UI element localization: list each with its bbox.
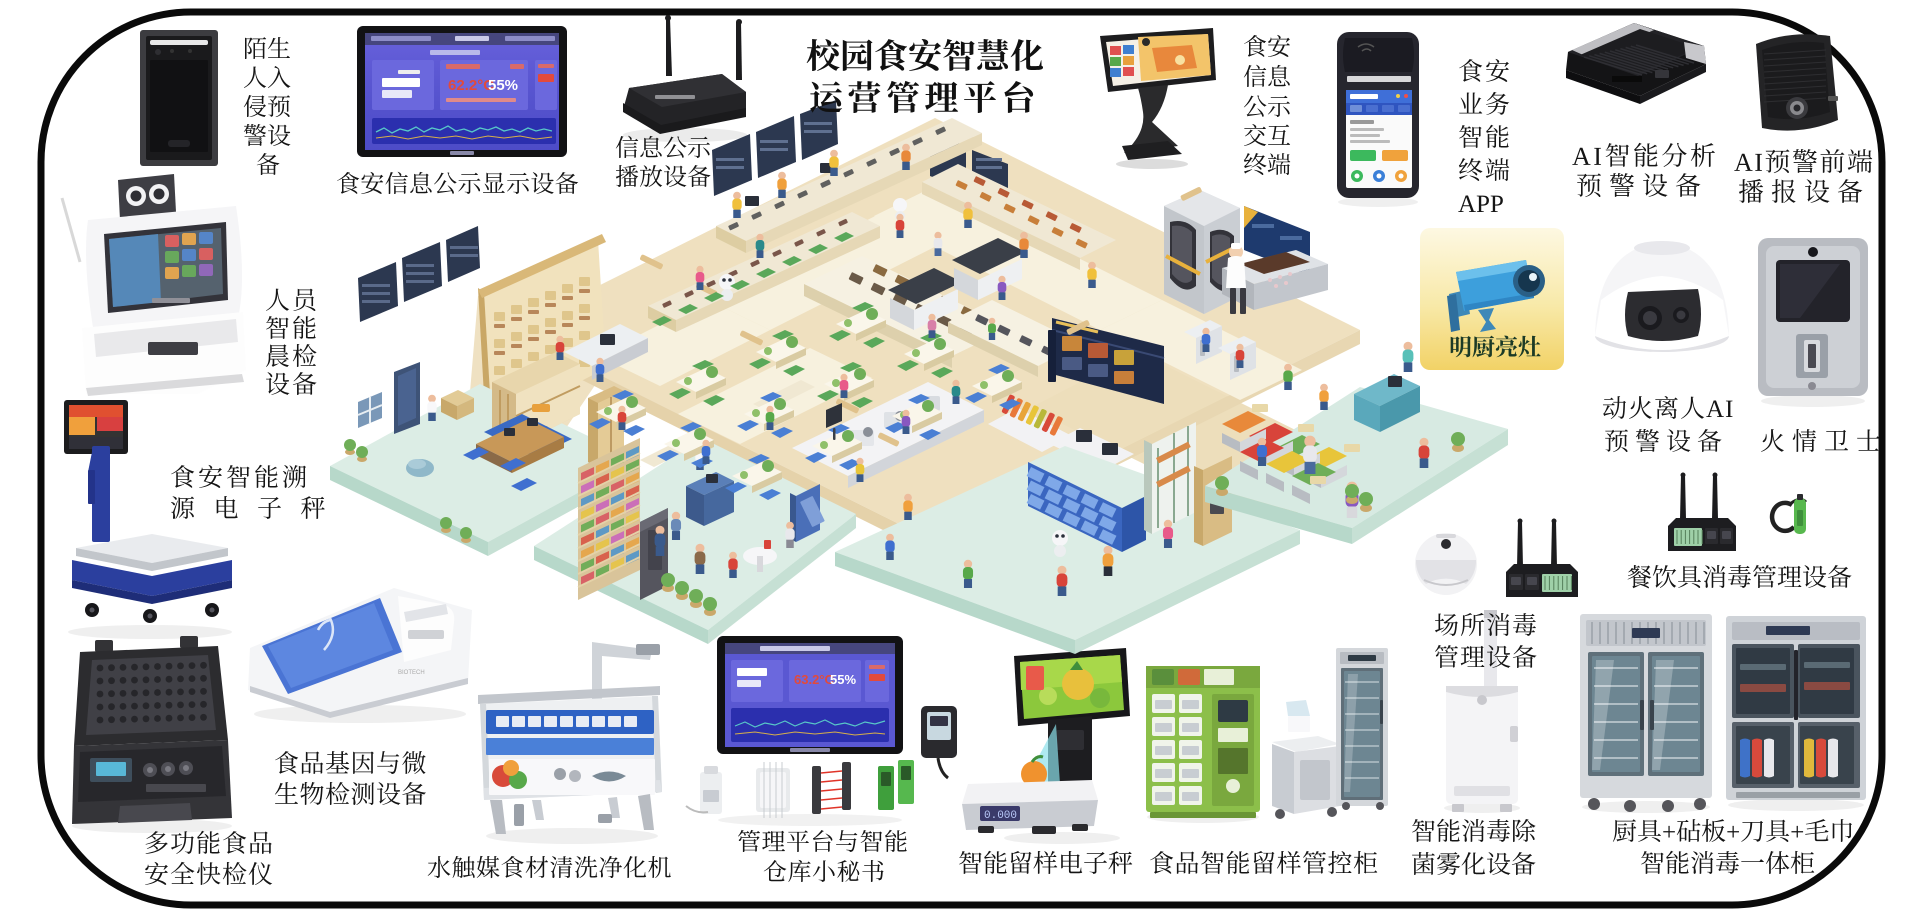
- svg-text:55%: 55%: [830, 672, 856, 687]
- svg-text:BIOTECH: BIOTECH: [398, 670, 425, 676]
- svg-text:55%: 55%: [488, 77, 518, 94]
- svg-text:63.2°C: 63.2°C: [794, 672, 835, 687]
- svg-text:0.000: 0.000: [984, 810, 1017, 822]
